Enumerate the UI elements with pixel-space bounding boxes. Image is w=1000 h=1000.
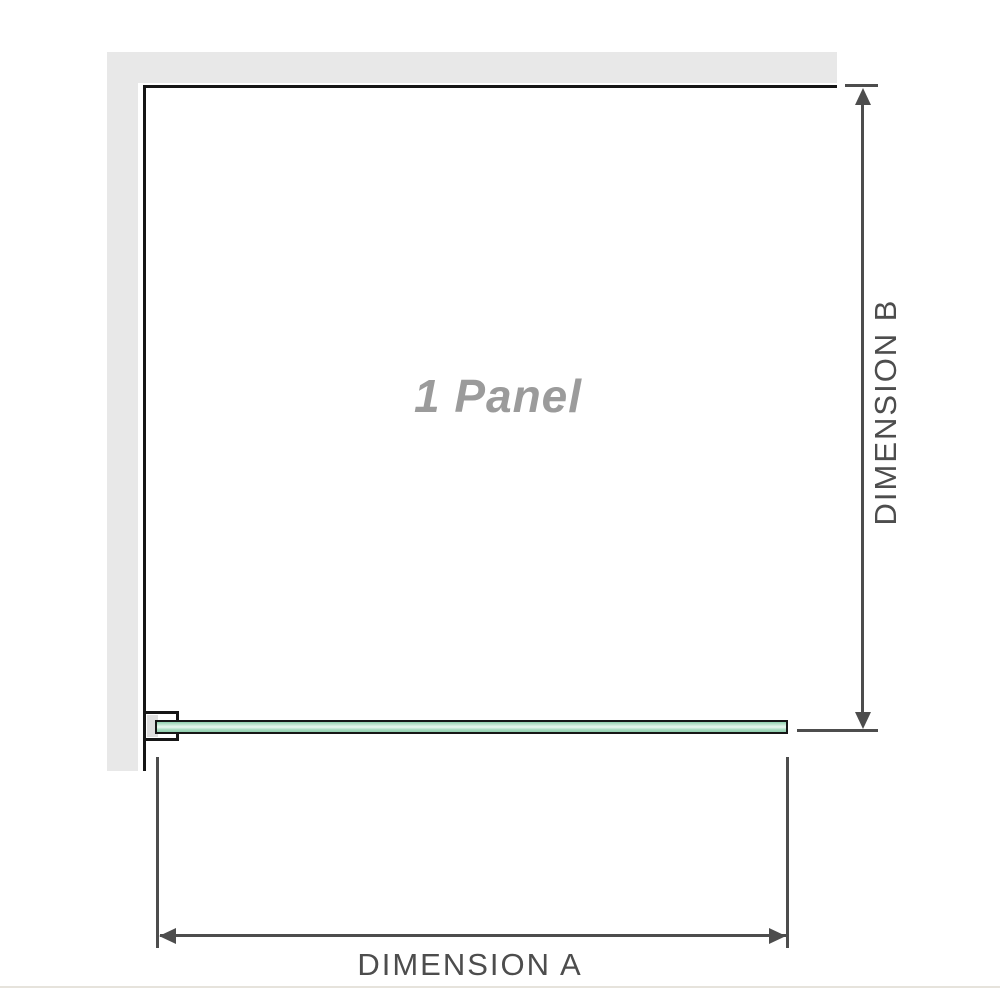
- dimension-b-line: [861, 98, 864, 718]
- dimension-b-label: DIMENSION B: [866, 262, 906, 562]
- panel-outline-top-edge: [143, 85, 837, 88]
- dimension-b-bottom-tick: [797, 729, 878, 732]
- shower-panel-diagram: 1 Panel DIMENSION B DIMENSION A: [0, 0, 1000, 1000]
- wall-top: [107, 52, 837, 83]
- dimension-a-left-extension: [156, 757, 159, 948]
- dimension-a-right-extension: [786, 757, 789, 948]
- dimension-a-line: [160, 934, 786, 937]
- arrow-down-icon: [855, 712, 871, 729]
- page-baseline-divider: [0, 986, 1000, 988]
- arrow-left-icon: [159, 928, 176, 944]
- arrow-right-icon: [769, 928, 786, 944]
- panel-outline-left-edge: [143, 85, 146, 771]
- glass-panel-plan-view: [155, 720, 788, 734]
- panel-count-label: 1 Panel: [348, 366, 648, 426]
- dimension-a-label: DIMENSION A: [295, 946, 645, 984]
- arrow-up-icon: [855, 88, 871, 105]
- dimension-b-top-tick: [845, 84, 878, 87]
- wall-left: [107, 52, 138, 771]
